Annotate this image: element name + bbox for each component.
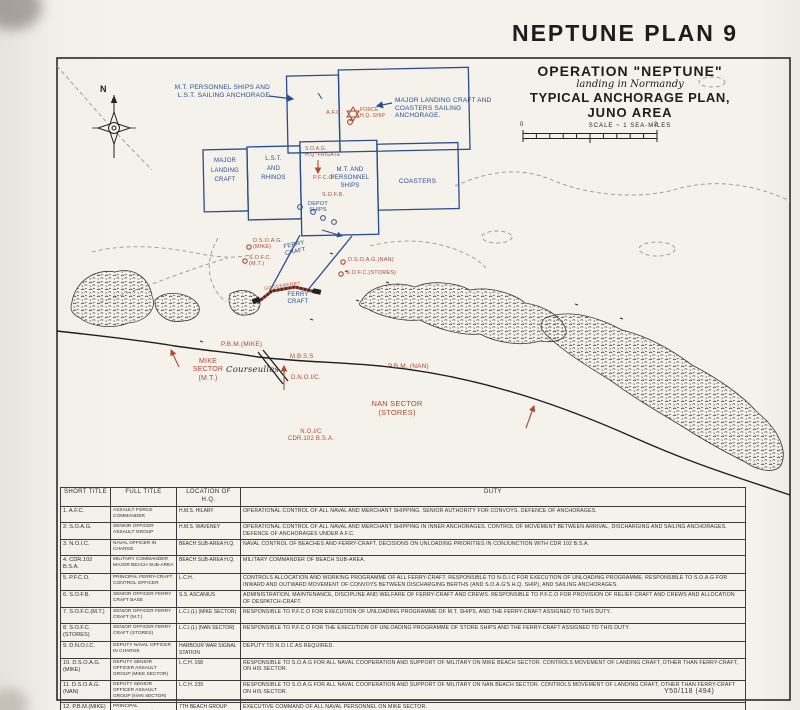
label-sofc-stores: S.O.F.C.(STORES) [346, 270, 396, 276]
legend-block: OPERATION "NEPTUNE" landing in Normandy … [518, 63, 742, 129]
header-location: LOCATION OF H.Q. [177, 488, 241, 507]
cell-short: 11. D.S.O.A.G.(NAN) [61, 680, 111, 702]
cell-duty: OPERATIONAL CONTROL OF ALL NAVAL AND MER… [241, 507, 746, 523]
cell-short: 12. P.B.M.(MIKE) [61, 702, 111, 710]
cell-loc: H.M.S. WAVENEY [177, 523, 241, 540]
cell-full: DEPUTY NAVAL OFFICER IN CHARGE [111, 642, 177, 659]
scale-right-number: 2 [654, 122, 657, 128]
scale-bar [523, 130, 657, 143]
sheet-reference: Y50/118 (494) [664, 688, 714, 695]
table-row: 5. P.F.C.O.PRINCIPAL FERRY-CRAFT CONTROL… [61, 574, 746, 591]
header-full-title: FULL TITLE [111, 488, 177, 507]
cell-loc: L.C.H. 168 [177, 658, 241, 680]
cell-full: PRINCIPAL BEACHMASTER (MIKE SECTOR) [111, 702, 177, 710]
label-force-hq-ship: FORCE H.Q. SHIP [360, 108, 396, 120]
cell-full: DEPUTY SENIOR OFFICER ASSAULT GROUP (NAN… [111, 680, 177, 702]
cell-duty: EXECUTIVE COMMAND OF ALL NAVAL PERSONNEL… [241, 702, 746, 710]
table-row: 3. N.O.I.C.NAVAL OFFICER IN CHARGEBEACH … [61, 540, 746, 556]
cell-loc: 7TH BEACH GROUP ARMY H.Q. [177, 702, 241, 710]
label-dsoag-mike: D.S.O.A.G. (MIKE) [253, 238, 293, 251]
header-short-title: SHORT TITLE [61, 488, 111, 507]
legend-area-title: JUNO AREA [518, 105, 742, 120]
cell-loc: BEACH SUB-AREA H.Q. [177, 556, 241, 574]
box-label-lst-rhinos: L.S.T. AND RHINOS [247, 155, 300, 184]
label-soag-frigate: S.O.A.G. H.Q. FRIGATE [305, 147, 349, 159]
table-row: 9. D.N.O.I.C.DEPUTY NAVAL OFFICER IN CHA… [61, 642, 746, 659]
table-row: 12. P.B.M.(MIKE)PRINCIPAL BEACHMASTER (M… [61, 702, 746, 710]
cell-loc: L.C.H. [177, 574, 241, 591]
cell-full: SENIOR OFFICER FERRY CRAFT BASE [111, 591, 177, 608]
cell-duty: RESPONSIBLE TO P.F.C.O FOR EXECUTION OF … [241, 608, 746, 624]
label-ferry-craft-lower: FERRY CRAFT [281, 292, 315, 306]
label-dsoag-nan: D.S.O.A.G.(NAN) [348, 257, 394, 263]
cell-short: 10. D.S.O.A.G.(MIKE) [61, 658, 111, 680]
cell-full: SENIOR OFFICER ASSAULT GROUP [111, 523, 177, 540]
legend-plan-title: TYPICAL ANCHORAGE PLAN, [518, 90, 742, 105]
cell-short: 2. S.O.A.G. [61, 523, 111, 540]
cell-duty: DEPUTY TO N.O.I.C AS REQUIRED. [241, 642, 746, 659]
cell-duty: OPERATIONAL CONTROL OF ALL NAVAL AND MER… [241, 523, 746, 540]
label-sofc-mt: S.O.F.C. (M.T.) [249, 255, 281, 268]
table-row: 8. S.O.F.C.(STORES)SENIOR OFFICER FERRY … [61, 624, 746, 642]
cell-short: 3. N.O.I.C. [61, 540, 111, 556]
label-dnoic: D.N.O.I/C. [291, 375, 321, 382]
label-pbm-nan: P.B.M. (NAN) [388, 363, 429, 371]
cell-short: 9. D.N.O.I.C. [61, 642, 111, 659]
cell-duty: NAVAL CONTROL OF BEACHES AND FERRY-CRAFT… [241, 540, 746, 556]
cell-short: 8. S.O.F.C.(STORES) [61, 624, 111, 642]
box-label-coasters: COASTERS [377, 178, 458, 186]
label-sofb: S.O.F.B. [322, 192, 344, 198]
cell-duty: RESPONSIBLE TO P.F.C.O FOR THE EXECUTION… [241, 624, 746, 642]
cell-loc: L.C.H. 239 [177, 680, 241, 702]
cell-full: SENIOR OFFICER FERRY CRAFT (M.T.) [111, 608, 177, 624]
table-row: 2. S.O.A.G.SENIOR OFFICER ASSAULT GROUPH… [61, 523, 746, 540]
table-row: 10. D.S.O.A.G.(MIKE)DEPUTY SENIOR OFFICE… [61, 658, 746, 680]
cell-full: DEPUTY SENIOR OFFICER ASSAULT GROUP (MIK… [111, 658, 177, 680]
label-pbm-mike: P.B.M.(MIKE) [221, 341, 262, 349]
label-depot-ships: DEPOT SHIPS [303, 201, 333, 214]
table-row: 7. S.O.F.C.(M.T.)SENIOR OFFICER FERRY CR… [61, 608, 746, 624]
cell-duty: RESPONSIBLE TO S.O.A.G FOR ALL NAVAL COO… [241, 658, 746, 680]
cell-full: SENIOR OFFICER FERRY CRAFT (STORES) [111, 624, 177, 642]
label-noic: N.O.I/C CDR.102 B.S.A. [278, 429, 344, 443]
cell-full: ASSAULT FORCE COMMANDER [111, 507, 177, 523]
cell-duty: ADMINISTRATION, MAINTENANCE, DISCIPLINE … [241, 591, 746, 608]
table-row: 1. A.F.C.ASSAULT FORCE COMMANDERH.M.S. H… [61, 507, 746, 523]
cell-full: MILITARY COMMANDER MAJOR BEACH SUB-AREA [111, 556, 177, 574]
label-afc: A.F.C. [326, 110, 342, 116]
table-header-row: SHORT TITLE FULL TITLE LOCATION OF H.Q. … [61, 488, 746, 507]
cell-full: PRINCIPAL FERRY-CRAFT CONTROL OFFICER [111, 574, 177, 591]
cell-duty: CONTROLS ALLOCATION AND WORKING PROGRAMM… [241, 574, 746, 591]
label-courseulles: Courseulles [226, 365, 279, 375]
table-row: 11. D.S.O.A.G.(NAN)DEPUTY SENIOR OFFICER… [61, 680, 746, 702]
legend-subtitle: landing in Normandy [518, 79, 742, 90]
cell-loc: HARBOUR WAR SIGNAL STATION [177, 642, 241, 659]
legend-operation-title: OPERATION "NEPTUNE" [518, 63, 742, 79]
cell-loc: BEACH SUB-AREA H.Q. [177, 540, 241, 556]
cell-short: 4. CDR.102 B.S.A. [61, 556, 111, 574]
label-pfco: P.F.C.O. [313, 175, 335, 181]
compass-north-label: N [100, 84, 107, 94]
org-table: SHORT TITLE FULL TITLE LOCATION OF H.Q. … [60, 487, 746, 710]
table-row: 4. CDR.102 B.S.A.MILITARY COMMANDER MAJO… [61, 556, 746, 574]
header-duty: DUTY [241, 488, 746, 507]
cell-short: 7. S.O.F.C.(M.T.) [61, 608, 111, 624]
org-table-body: 1. A.F.C.ASSAULT FORCE COMMANDERH.M.S. H… [61, 507, 746, 710]
cell-loc: L.C.I.(L) (MIKE SECTOR) [177, 608, 241, 624]
cell-loc: H.M.S. HILARY [177, 507, 241, 523]
label-mbss: M.B.S.S [290, 354, 313, 361]
scale-caption: SCALE ~ 1 SEA-MILES [518, 123, 742, 129]
annotation-mt-anchorage: M.T. PERSONNEL SHIPS AND L.S.T. SAILING … [160, 84, 270, 99]
cell-loc: S.S. ASCANIUS [177, 591, 241, 608]
label-nan-sector: NAN SECTOR (STORES) [362, 400, 432, 418]
map-sheet: NEPTUNE PLAN 9 [0, 0, 800, 710]
cell-loc: L.C.I.(L) (NAN SECTOR) [177, 624, 241, 642]
cell-short: 6. S.O.F.B. [61, 591, 111, 608]
scale-left-number: 0 [520, 122, 523, 128]
force-hq-star-icon [347, 107, 359, 121]
cell-short: 1. A.F.C. [61, 507, 111, 523]
cell-full: NAVAL OFFICER IN CHARGE [111, 540, 177, 556]
box-label-major-landing-craft: MAJOR LANDING CRAFT [203, 157, 247, 186]
cell-short: 5. P.F.C.O. [61, 574, 111, 591]
table-row: 6. S.O.F.B.SENIOR OFFICER FERRY CRAFT BA… [61, 591, 746, 608]
compass-rose-icon [92, 95, 136, 158]
annotation-major-anchorage: MAJOR LANDING CRAFT AND COASTERS SAILING… [395, 97, 503, 120]
cell-duty: MILITARY COMMANDER OF BEACH SUB-AREA. [241, 556, 746, 574]
